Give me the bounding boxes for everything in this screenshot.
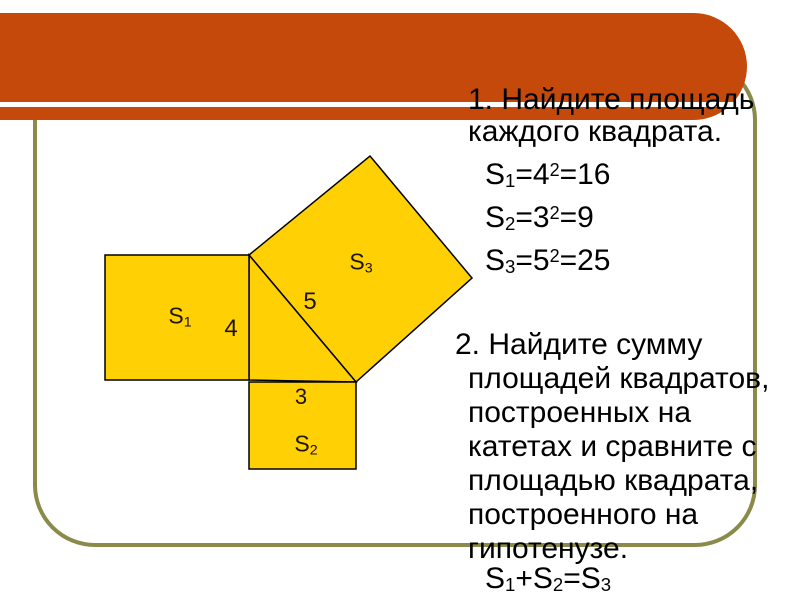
task2-line: построенных на — [455, 396, 769, 430]
area-formulas: S1=42=16 S2=32=9 S3=52=25 — [485, 158, 610, 287]
presentation-slide: S1 4 5 S3 3 S2 1. Найдите площадь каждог… — [0, 0, 800, 600]
task2-line: площадью квадрата, — [455, 464, 769, 498]
label-leg-4: 4 — [224, 315, 237, 343]
label-s1: S1 — [168, 303, 191, 330]
task1-line: каждого квадрата. — [468, 116, 754, 148]
label-hypotenuse-5: 5 — [303, 288, 316, 316]
pythagoras-figure — [90, 140, 490, 485]
label-leg-3: 3 — [295, 384, 307, 410]
task2-line: площадей квадратов, — [455, 362, 769, 396]
formula-s1: S1=42=16 — [485, 158, 610, 191]
formula-s2: S2=32=9 — [485, 201, 610, 234]
task2-line: катетах и сравните с — [455, 430, 769, 464]
label-s3: S3 — [349, 249, 372, 276]
sum-formula: S1+S2=S3 — [485, 562, 611, 595]
formula-s3: S3=52=25 — [485, 244, 610, 277]
task2-line: гипотенузе. — [455, 532, 769, 566]
task2-line: построенного на — [455, 498, 769, 532]
task2-text: 2. Найдите сумму площадей квадратов, пос… — [455, 328, 769, 566]
task2-line: 2. Найдите сумму — [455, 328, 769, 362]
task1-text: 1. Найдите площадь каждого квадрата. — [468, 84, 754, 148]
label-s2: S2 — [294, 431, 317, 458]
task1-line: 1. Найдите площадь — [468, 84, 754, 116]
